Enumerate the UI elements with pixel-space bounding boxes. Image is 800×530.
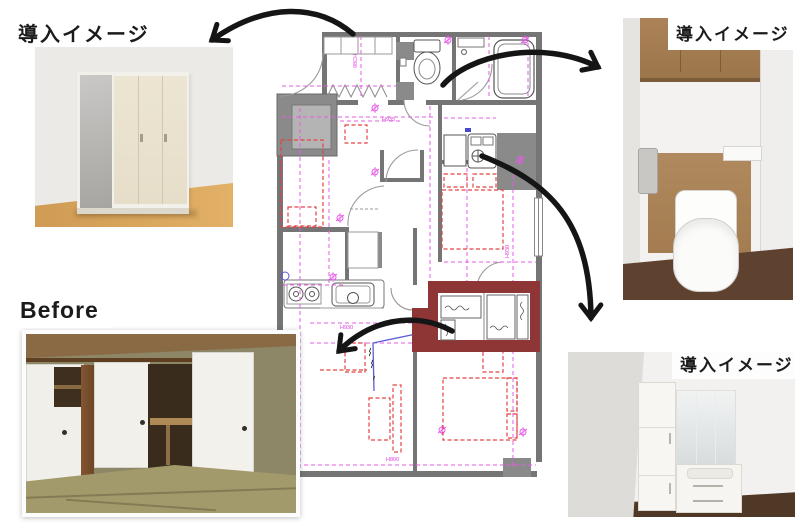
intro-image-label-bottom-right: 導入イメージ	[672, 348, 800, 379]
wall-fixture	[638, 148, 658, 194]
svg-text:98CH: 98CH	[353, 54, 359, 68]
sliding-door	[94, 362, 150, 468]
toilet-bowl	[673, 218, 739, 292]
corner-hand-basin	[723, 146, 762, 161]
wardrobe-door	[139, 76, 163, 204]
wood-pillar	[81, 365, 94, 479]
washroom-fixture	[444, 128, 496, 168]
vanity-sink-cabinet	[676, 464, 742, 513]
svg-text:H930: H930	[340, 325, 353, 331]
toilet-after-photo	[623, 18, 793, 300]
wardrobe-door	[163, 76, 187, 204]
svg-text:H930: H930	[505, 245, 511, 258]
vanity-mirror	[676, 390, 736, 466]
wardrobe-cabinet	[77, 72, 189, 214]
intro-image-label-top-right: 導入イメージ	[668, 15, 798, 50]
window-symbol	[535, 198, 543, 256]
closet-shelf	[150, 418, 192, 425]
kitchen-fixture	[284, 232, 384, 308]
highlight-box	[412, 281, 540, 352]
wood-ceiling	[26, 334, 296, 358]
before-tatami-room-photo	[22, 330, 300, 517]
closet-opening	[148, 364, 192, 468]
renovation-proposal-page: { "labels": { "top_left": "導入イメージ", "top…	[0, 0, 800, 530]
plan-shafts	[277, 42, 536, 477]
sliding-door	[192, 352, 254, 476]
tall-storage-cabinet	[638, 382, 676, 511]
wardrobe-after-photo	[35, 47, 233, 227]
svg-text:H800: H800	[386, 457, 399, 463]
svg-text:H935: H935	[382, 117, 395, 123]
wardrobe-mirror-panel	[80, 75, 112, 209]
wardrobe-door	[114, 76, 138, 204]
before-label: Before	[8, 294, 111, 327]
bathtub-fixture	[458, 38, 534, 100]
